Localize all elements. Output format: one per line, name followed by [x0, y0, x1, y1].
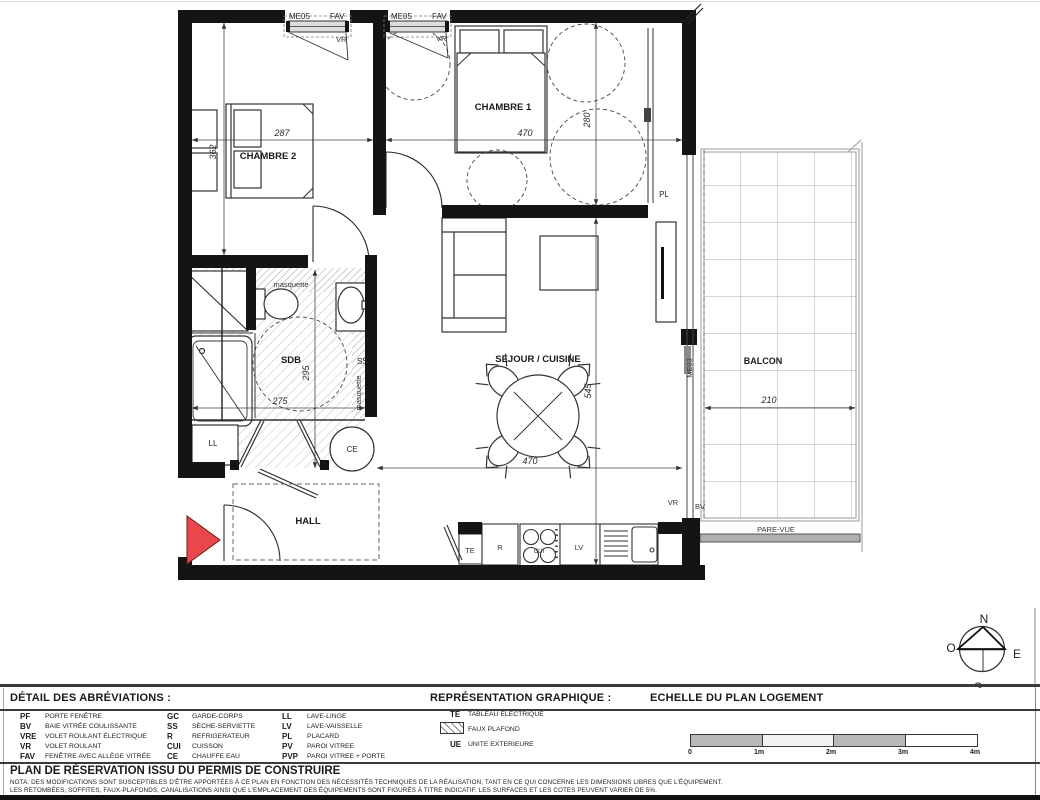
- scale-tick: 3m: [898, 749, 908, 756]
- abbr-label: FAUX PLAFOND: [468, 725, 520, 733]
- scale-tick: 1m: [754, 749, 764, 756]
- label-masquette-h: masquette: [273, 280, 308, 289]
- sink-basin: [632, 527, 657, 562]
- plan-title: PLAN DE RÉSERVATION ISSU DU PERMIS DE CO…: [10, 765, 340, 777]
- living-furniture: [442, 218, 676, 332]
- abbr-label: PLACARD: [307, 732, 339, 740]
- scale-title: ECHELLE DU PLAN LOGEMENT: [650, 692, 823, 704]
- dim-sdb-width: 275: [271, 396, 288, 406]
- abbr-label: VOLET ROULANT: [45, 742, 102, 750]
- abbr: LV: [282, 722, 307, 731]
- toilet-bowl: [264, 289, 298, 319]
- abbr-label: PAROI VITREE + PORTE: [307, 752, 385, 760]
- page-bottom-bar: [0, 795, 1040, 800]
- pillow: [460, 30, 499, 53]
- floor-plan-page: ME05 FAV ME05 FAV VR VR CHAMBRE 2 CHAMBR…: [0, 0, 1040, 800]
- legend-item: CUICUISSON: [167, 742, 223, 752]
- nota-line-2: LES RETOMBÉES, SOFFITES, FAUX-PLAFONDS, …: [10, 787, 657, 794]
- floor-plan-svg: ME05 FAV ME05 FAV VR VR CHAMBRE 2 CHAMBR…: [0, 0, 1040, 688]
- label-bay-type: BV: [695, 502, 705, 511]
- bedroom2-door-swing: [313, 206, 369, 262]
- abbr: VRE: [20, 732, 45, 741]
- scale-tick: 4m: [970, 749, 980, 756]
- window2-shutter: VR: [436, 34, 447, 43]
- label-towel-dryer: SS: [357, 357, 368, 366]
- abbr-label: SÈCHE-SERVIETTE: [192, 722, 255, 730]
- graphic-title: REPRÉSENTATION GRAPHIQUE :: [430, 692, 611, 704]
- label-electrical-panel: TE: [465, 546, 475, 555]
- window2-type: FAV: [432, 12, 447, 21]
- compass-e: E: [1013, 647, 1021, 661]
- abbr: TE: [450, 710, 468, 719]
- label-placard: PL: [659, 190, 669, 199]
- abbr: CUI: [167, 742, 192, 751]
- scale-segment: [906, 735, 978, 746]
- dining-set: [471, 349, 604, 482]
- legend-item: PVPPAROI VITREE + PORTE: [282, 752, 385, 762]
- dim-chambre1-width: 470: [517, 128, 532, 138]
- abbr-label: GARDE-CORPS: [192, 712, 243, 720]
- pillow: [504, 30, 543, 53]
- dim-sejour-height: 545: [583, 383, 593, 399]
- faux-plafond-swatch: [440, 722, 464, 734]
- abbr-label: LAVE-VAISSELLE: [307, 722, 362, 730]
- legend-item: UEUNITE EXTERIEURE: [450, 740, 534, 750]
- abbr: R: [167, 732, 192, 741]
- scale-segment: [763, 735, 835, 746]
- room-label-sdb: SDB: [281, 355, 301, 366]
- abbr: PVP: [282, 752, 307, 761]
- abbr-label: CHAUFFE EAU: [192, 752, 240, 760]
- abbr-label: FENÊTRE AVEC ALLÈGE VITRÉE: [45, 752, 151, 760]
- abbreviations-title: DÉTAIL DES ABRÉVIATIONS :: [10, 692, 171, 704]
- legend-item: RREFRIGERATEUR: [167, 732, 250, 742]
- footer-rule: [0, 762, 1040, 764]
- abbr: UE: [450, 740, 468, 749]
- scale-bar: [690, 734, 978, 747]
- abbr-label: VOLET ROULANT ÉLECTRIQUE: [45, 732, 147, 740]
- legend-item: TETABLEAU ELECTRIQUE: [450, 710, 544, 720]
- abbr: PL: [282, 732, 307, 741]
- room-label-chambre2: CHAMBRE 2: [240, 151, 296, 162]
- dim-chambre1-height: 280: [582, 112, 592, 128]
- window1-code: ME05: [289, 12, 310, 21]
- scale-tick: 0: [688, 749, 692, 756]
- pillow: [234, 110, 261, 147]
- abbr: PV: [282, 742, 307, 751]
- nightstand: [191, 110, 217, 148]
- window1-shutter: VR: [336, 35, 347, 44]
- label-dishwasher: LV: [575, 543, 584, 552]
- compass-rose: N S E O: [946, 612, 1021, 688]
- legend-item: LVLAVE-VAISSELLE: [282, 722, 362, 732]
- bedroom1-door-swing: [386, 152, 442, 208]
- abbr-label: UNITE EXTERIEURE: [468, 740, 534, 748]
- legend-item: PLPLACARD: [282, 732, 339, 742]
- label-masquette-v: masquette: [354, 375, 363, 410]
- label-bay-shutter: VR: [668, 498, 679, 507]
- abbr-label: BAIE VITRÉE COULISSANTE: [45, 722, 137, 730]
- room-label-hall: HALL: [295, 516, 321, 527]
- scale-segment: [691, 735, 763, 746]
- abbr: GC: [167, 712, 192, 721]
- dim-chambre2-height: 362: [208, 144, 218, 159]
- abbr: SS: [167, 722, 192, 731]
- scale-segment: [834, 735, 906, 746]
- label-cooktop: CUI: [534, 549, 545, 555]
- compass-n: N: [980, 612, 989, 626]
- legend-left-border: [3, 688, 4, 795]
- abbr: FAV: [20, 752, 45, 761]
- tv-screen: [661, 247, 664, 299]
- legend-item: BVBAIE VITRÉE COULISSANTE: [20, 722, 137, 732]
- nota-line-1: NOTA: DES MODIFICATIONS SONT SUSCEPTIBLE…: [10, 779, 723, 786]
- legend-item: SSSÈCHE-SERVIETTE: [167, 722, 255, 732]
- placard-handle: [644, 108, 651, 122]
- coffee-table: [540, 236, 598, 290]
- dim-sdb-height: 295: [301, 365, 311, 382]
- dim-balcon-width: 210: [760, 395, 776, 405]
- legend-item: LLLAVE-LINGE: [282, 712, 347, 722]
- window2-code: ME05: [391, 12, 412, 21]
- room-label-balcon: BALCON: [744, 356, 783, 366]
- compass-o: O: [946, 641, 955, 655]
- label-pare-vue: PARE-VUE: [757, 525, 795, 534]
- room-label-sejour: SEJOUR / CUISINE: [495, 354, 581, 365]
- abbr-label: REFRIGERATEUR: [192, 732, 250, 740]
- scale-tick: 2m: [826, 749, 836, 756]
- washbasin: [338, 287, 364, 323]
- legend-top-rule: [0, 684, 1040, 687]
- abbr: VR: [20, 742, 45, 751]
- entrance-arrow: [187, 516, 220, 564]
- legend-item: FAUX PLAFOND: [468, 725, 520, 735]
- label-fridge: R: [497, 543, 503, 552]
- legend-item: CECHAUFFE EAU: [167, 752, 240, 762]
- legend-item: FAVFENÊTRE AVEC ALLÈGE VITRÉE: [20, 752, 151, 762]
- dim-sejour-width: 470: [522, 456, 537, 466]
- compass-needle: [958, 627, 1005, 649]
- legend-item: GCGARDE-CORPS: [167, 712, 243, 722]
- abbr-label: CUISSON: [192, 742, 223, 750]
- dim-chambre2-width: 287: [273, 128, 290, 138]
- abbr: CE: [167, 752, 192, 761]
- legend-item: VREVOLET ROULANT ÉLECTRIQUE: [20, 732, 147, 742]
- entrance-door-swing: [224, 505, 280, 561]
- label-bay-code: ME03: [685, 358, 694, 378]
- abbr: BV: [20, 722, 45, 731]
- abbr: PF: [20, 712, 45, 721]
- label-water-heater: CE: [346, 445, 357, 454]
- window1-type: FAV: [330, 12, 345, 21]
- abbr-label: PAROI VITREE: [307, 742, 354, 750]
- room-label-chambre1: CHAMBRE 1: [475, 102, 532, 113]
- abbr-label: TABLEAU ELECTRIQUE: [468, 710, 544, 718]
- legend-item: PFPORTE FENÊTRE: [20, 712, 102, 722]
- abbr-label: LAVE-LINGE: [307, 712, 347, 720]
- legend-item: VRVOLET ROULANT: [20, 742, 102, 752]
- abbr-label: PORTE FENÊTRE: [45, 712, 102, 720]
- legend-item: PVPAROI VITREE: [282, 742, 354, 752]
- balcony: [700, 140, 862, 552]
- abbr: LL: [282, 712, 307, 721]
- pare-vue-screen: [700, 534, 860, 542]
- legend-right-border: [1035, 688, 1036, 796]
- label-washer: LL: [209, 439, 218, 448]
- tv-unit: [656, 222, 676, 322]
